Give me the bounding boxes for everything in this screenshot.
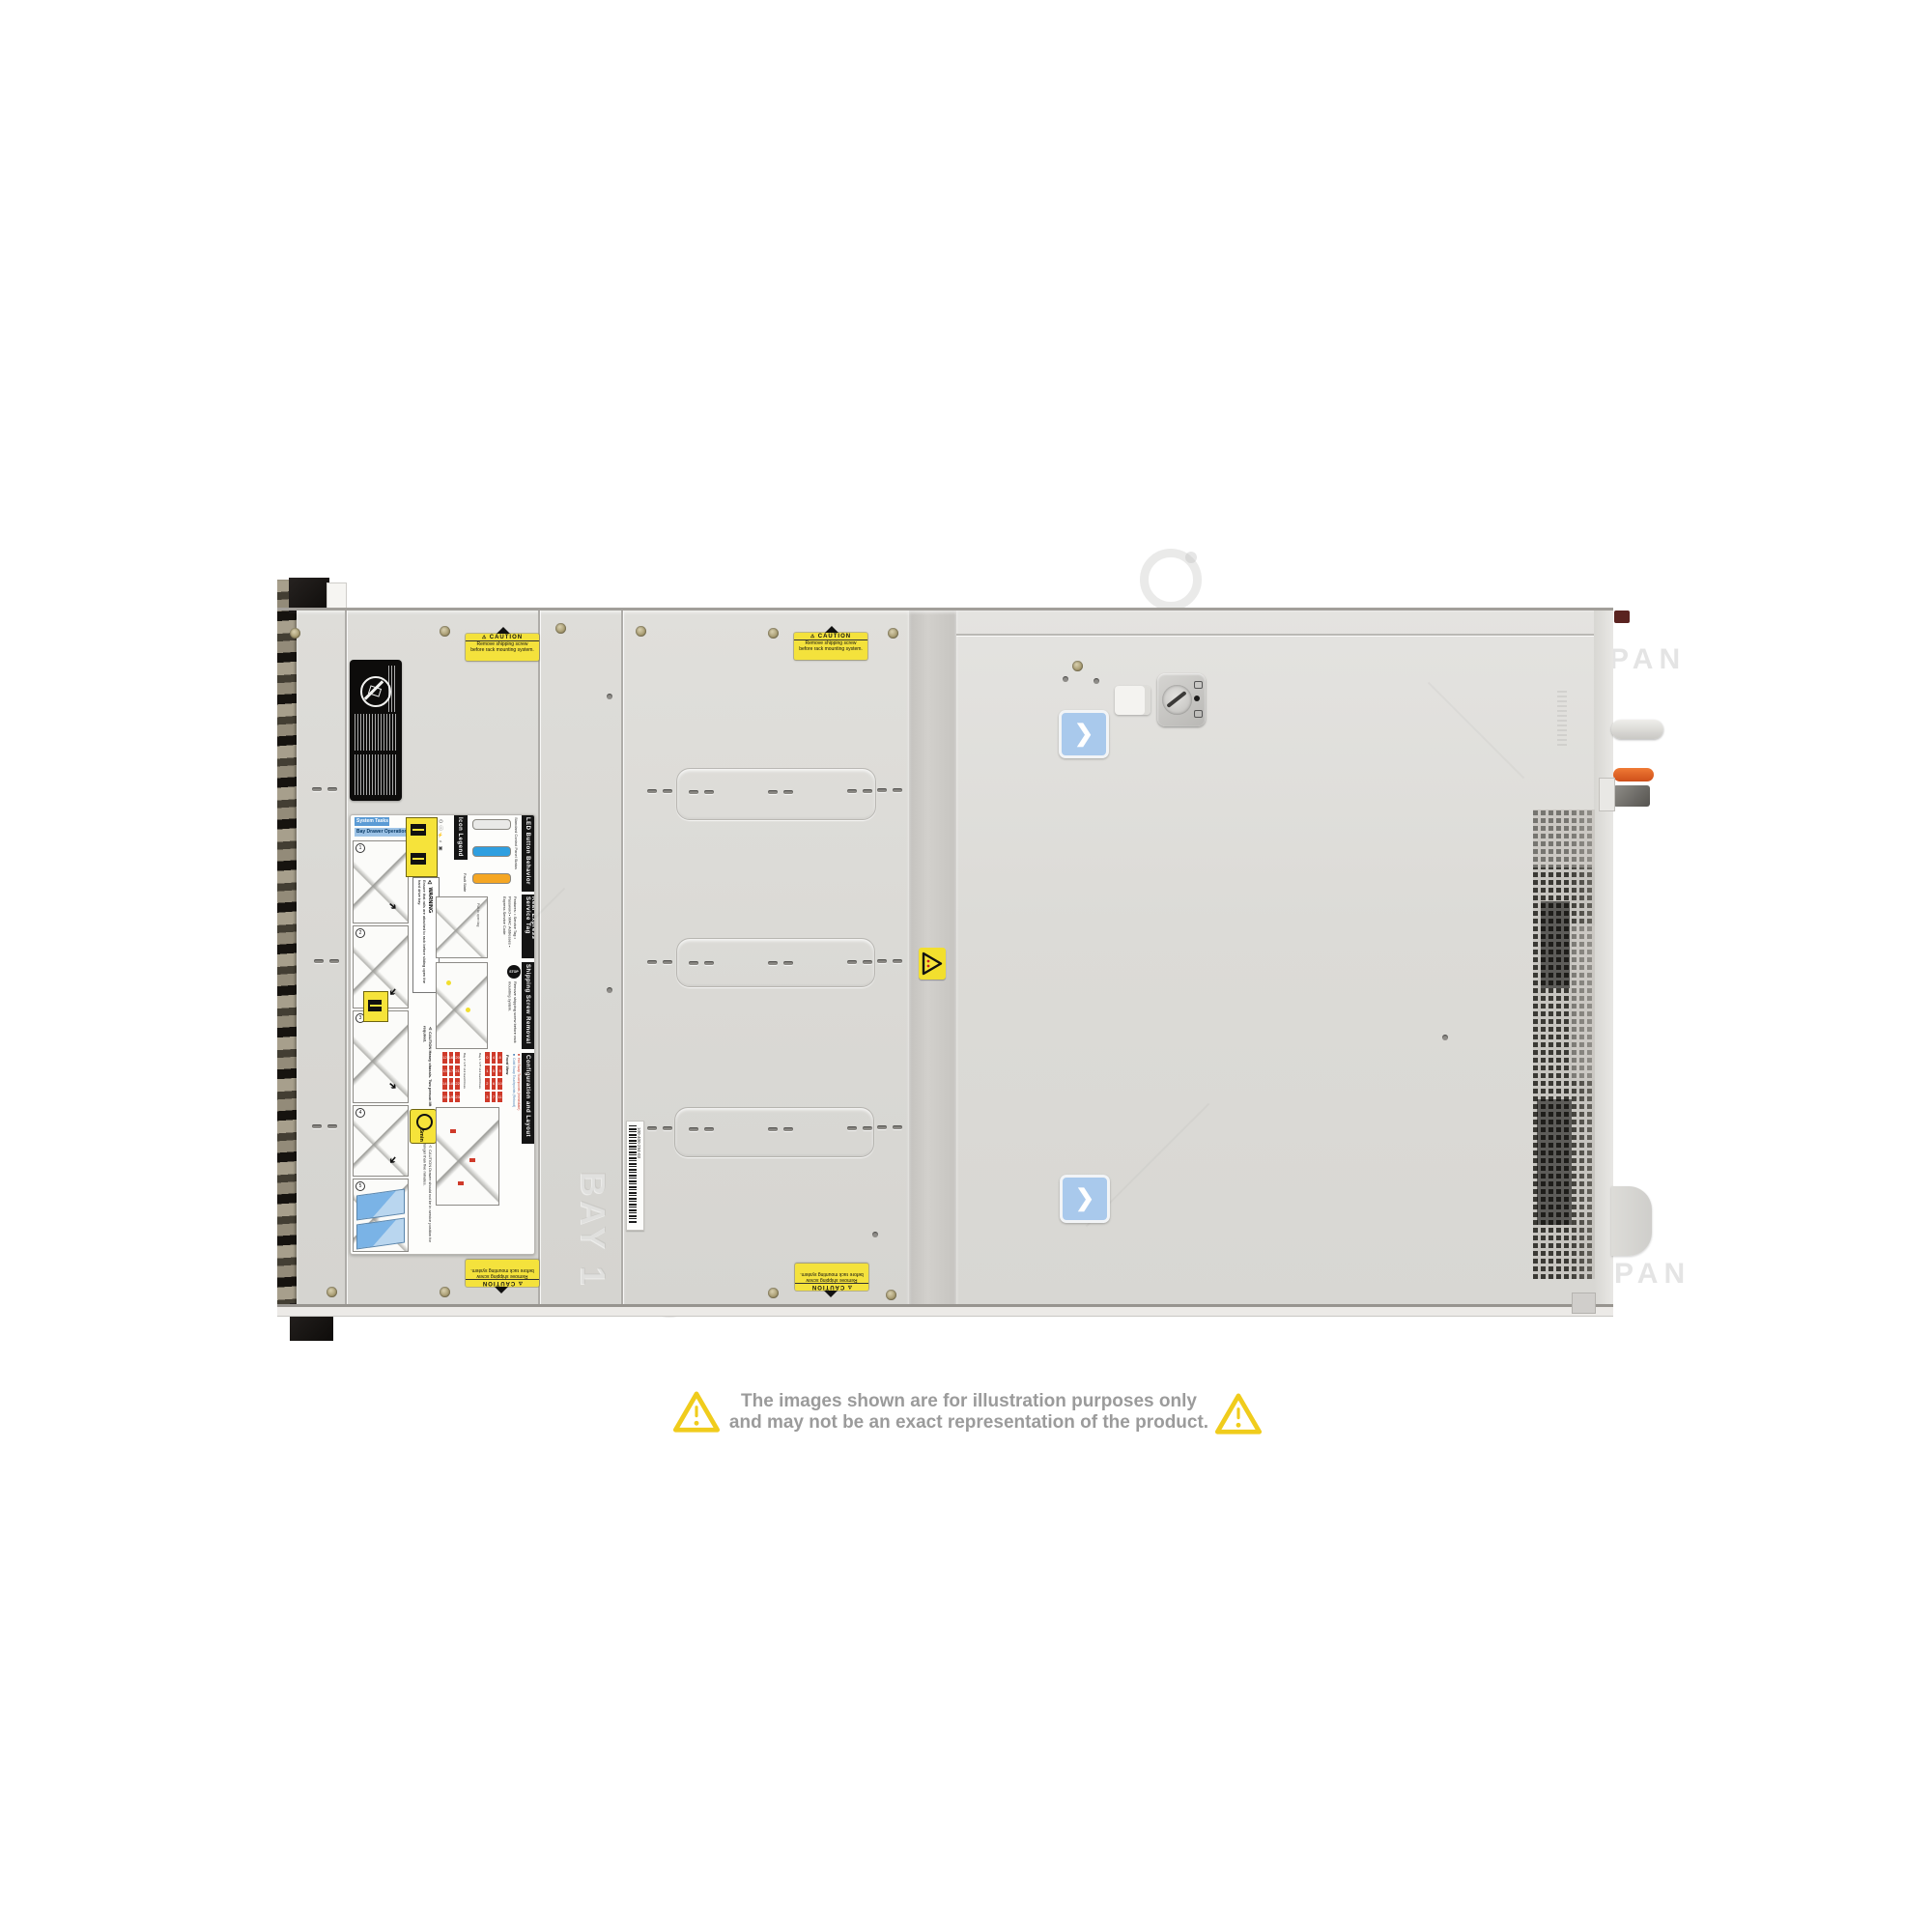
step-number: 5	[355, 1181, 365, 1191]
chassis-screw	[888, 628, 898, 639]
touchpoint	[450, 1129, 456, 1133]
rear-screw-tab	[1614, 611, 1630, 623]
drive-slot-cell: 19	[448, 1091, 455, 1104]
chassis-rivet	[607, 694, 612, 699]
stop-icon: STOP	[507, 965, 521, 979]
led-diagram: Normal StateFault State	[472, 819, 511, 893]
shipping-screw-diagram	[436, 962, 488, 1049]
five-min-badge: 5min	[410, 1109, 437, 1144]
screw-highlight	[466, 1008, 470, 1012]
chassis-screw	[327, 1287, 337, 1297]
drive-slot-cell: 16	[448, 1051, 455, 1065]
led-state-pill	[472, 819, 511, 830]
touchpoint	[469, 1158, 475, 1162]
drive-slot-cell: 5	[491, 1065, 497, 1078]
product-photo-canvas: COMPANCOMPANCOMPANCOMPANCOMPANCOMPANCOMP…	[0, 0, 1932, 1932]
drive-slot-cell: 6	[491, 1077, 497, 1091]
caution-title: CAUTION	[466, 634, 539, 641]
vent-shadow	[1537, 1099, 1572, 1225]
caution-sticker: CAUTIONRemove shipping screwbefore rack …	[466, 634, 539, 661]
cover-panel-right	[956, 609, 1613, 1310]
shipping-text: Remove shipping screw before rack mounti…	[491, 981, 518, 1045]
chassis-screw	[440, 1287, 450, 1297]
screw-highlight	[446, 980, 451, 985]
cover-lock-plate	[1157, 673, 1206, 726]
caution-heavy-text: ⚠ CAUTION Heavy chassis. Two person lift…	[410, 1026, 433, 1107]
regulatory-fine-print	[388, 666, 397, 712]
caution-line2: before rack mounting system.	[794, 646, 867, 652]
embossed-marking	[1557, 691, 1567, 749]
led-subheader: Standard Control Panel Status	[514, 817, 519, 893]
service-label: System Tasks Bay Drawer Operation 1➔2➔3➔…	[350, 814, 535, 1255]
barcode-number: 100-400-294-03	[637, 1127, 641, 1158]
bay2-drive-table: 121620131721141822151923	[441, 1051, 461, 1103]
cover-right-top-strip-seam	[956, 634, 1613, 636]
regulatory-fine-print	[355, 754, 397, 795]
led-state-label: Normal State	[463, 819, 468, 848]
drive-slot-cell: 11	[497, 1091, 503, 1104]
drive-slot-cell: 0	[484, 1051, 491, 1065]
drive-slot-cell: 15	[441, 1091, 448, 1104]
vent-slot-pair	[647, 789, 672, 794]
cover-screw	[1072, 661, 1083, 671]
led-header: LED Button Behavior	[522, 815, 534, 892]
drive-slot-cell: 17	[448, 1065, 455, 1078]
caution-drawer-text: ⚠ CAUTION Drawer should not be in servic…	[412, 1144, 433, 1242]
cover-hole	[1094, 678, 1099, 684]
rear-bump-handle	[1611, 1186, 1652, 1256]
panel-seam-3	[621, 609, 623, 1306]
lock-keyhole	[1194, 696, 1200, 701]
no-hammer-icon	[360, 676, 391, 707]
server-top-view: System Tasks Bay Drawer Operation 1➔2➔3➔…	[277, 576, 1664, 1320]
bottom-side-notch	[1572, 1293, 1596, 1314]
front-view-label: Front View	[505, 1055, 510, 1097]
drive-slot-cell: 23	[454, 1091, 461, 1104]
front-bezel-drives	[277, 580, 297, 1314]
service-tag-diagram: Pull to open tag	[436, 896, 488, 958]
drive-slot-cell: 12	[441, 1051, 448, 1065]
service-tag-header: Rear Express Service Tag	[522, 895, 534, 958]
blue-arrow-sticker: ❯	[1059, 710, 1109, 758]
chassis-rivet	[607, 987, 612, 993]
drive-slot-cell: 2	[484, 1077, 491, 1091]
pinch-hazard-pictogram	[363, 991, 388, 1022]
vent-highlight	[1572, 925, 1595, 1080]
step-number: 2	[355, 928, 365, 938]
chassis-bottom-side	[277, 1307, 1613, 1317]
drive-slot-cell: 10	[497, 1077, 503, 1091]
disclaimer-text: The images shown are for illustration pu…	[718, 1391, 1220, 1434]
blue-arrow-sticker: ❯	[1060, 1175, 1110, 1223]
vent-slot-pair	[647, 1126, 672, 1131]
disclaimer-line2: and may not be an exact representation o…	[718, 1412, 1220, 1434]
step-number: 4	[355, 1108, 365, 1118]
caution-sticker: CAUTIONRemove shipping screwbefore rack …	[466, 1260, 539, 1287]
panel-seam-2	[538, 609, 540, 1306]
shipping-header: Shipping Screw Removal	[522, 962, 534, 1049]
icon-legend-glyphs: ⏻ ⓘ ⚡ ⌁ ▣	[438, 819, 442, 889]
panel-seam-1	[345, 609, 347, 1306]
caution-line2: before rack mounting system.	[466, 1267, 539, 1273]
vent-slot-pair	[647, 960, 672, 965]
vent-slot-pair	[877, 1125, 902, 1130]
drive-slot-cell: 22	[454, 1077, 461, 1091]
rear-vent-grid	[1533, 810, 1595, 1279]
bay1-name: Bay 1: 3.5" x12 Hard Drives	[477, 1053, 482, 1103]
chassis-screw	[886, 1290, 896, 1300]
caution-sticker: CAUTIONRemove shipping screwbefore rack …	[794, 633, 867, 660]
cover-release-latch	[1115, 686, 1151, 715]
vent-highlight	[1533, 810, 1595, 867]
drive-slot-cell: 3	[484, 1091, 491, 1104]
embossed-bay-text: BAY 1	[573, 1171, 613, 1289]
chassis-screw	[636, 626, 646, 637]
service-tag-hint: Pull to open tag	[475, 903, 480, 952]
disclaimer-line1: The images shown are for illustration pu…	[718, 1391, 1220, 1412]
drive-slot-cell: 14	[441, 1077, 448, 1091]
chevron-right-icon: ❯	[1075, 1187, 1094, 1210]
arrow-icon: ➔	[385, 900, 398, 914]
recessed-panel-outline	[674, 1107, 874, 1157]
config-legend-cold: ■ Cold Swap Touchpoints (Reboot)	[511, 1053, 516, 1142]
caution-line2: before rack mounting system.	[795, 1271, 868, 1277]
drive-slot-cell: 7	[491, 1091, 497, 1104]
rear-handle	[1611, 720, 1663, 739]
caution-line2: before rack mounting system.	[466, 647, 539, 653]
step-number: 1	[355, 843, 365, 853]
regulatory-label	[350, 660, 402, 801]
lock-dial-icon	[1162, 685, 1192, 715]
pinch-hazard-pictogram	[406, 817, 438, 877]
warning-triangle-icon	[1213, 1391, 1264, 1437]
hazard-triangle-sticker	[919, 948, 946, 980]
config-legend-hot: ■ Hot Swap Touchpoints (Immediate)	[516, 1053, 521, 1142]
barcode-sticker: 100-400-294-03	[626, 1121, 644, 1231]
chassis-screw	[290, 628, 300, 639]
clock-icon	[416, 1114, 433, 1130]
arrow-icon: ➔	[385, 1153, 399, 1166]
led-state-pill	[472, 846, 511, 857]
chassis-rivet	[1442, 1035, 1448, 1040]
drive-slot-cell: 4	[491, 1051, 497, 1065]
config-header: Configuration and Layout	[522, 1053, 534, 1144]
chassis-rivet	[872, 1232, 878, 1237]
rear-orange-tab	[1613, 768, 1654, 781]
regulatory-fine-print	[355, 714, 397, 751]
caution-title: CAUTION	[795, 1283, 868, 1291]
hazard-triangle-icon	[921, 951, 944, 977]
rear-latch-piece	[1613, 785, 1650, 807]
vent-slot-pair	[312, 787, 337, 792]
rear-edge-step	[1599, 778, 1615, 811]
warning-title: ⚠ WARNING	[427, 880, 433, 913]
bay1-drive-table: 04815926103711	[484, 1051, 503, 1103]
warning-text: Ensure that rails are attached to rack b…	[415, 880, 427, 992]
chassis-screw	[440, 626, 450, 637]
bay2-name: Bay 2: 3.5" x12 Hard Drives	[462, 1053, 467, 1103]
chassis-top-edge	[277, 608, 1613, 611]
drive-slot-cell: 18	[448, 1077, 455, 1091]
drive-slot-cell: 13	[441, 1065, 448, 1078]
recessed-panel-outline	[676, 768, 876, 820]
drive-slot-cell: 1	[484, 1065, 491, 1078]
barcode-icon	[629, 1125, 637, 1224]
instruction-step-diagram: 3➔	[353, 1010, 409, 1103]
led-state-pill	[472, 873, 511, 884]
drive-slot-cell: 9	[497, 1065, 503, 1078]
locked-icon	[1194, 681, 1203, 689]
caution-title: CAUTION	[794, 633, 867, 640]
vent-slot-pair	[314, 959, 339, 964]
chassis-screw	[555, 623, 566, 634]
warning-triangle-icon	[671, 1389, 722, 1435]
caution-title: CAUTION	[466, 1279, 539, 1287]
chassis-screw	[768, 628, 779, 639]
drawer-diagram	[436, 1107, 499, 1206]
cover-right-rear-strip	[1594, 611, 1613, 1310]
vent-shadow	[1541, 901, 1570, 988]
caution-sticker: CAUTIONRemove shipping screwbefore rack …	[795, 1264, 868, 1291]
recessed-panel-outline	[676, 938, 875, 987]
caution-line1: Remove shipping screw	[795, 1277, 868, 1283]
drive-slot-cell: 8	[497, 1051, 503, 1065]
cover-hole	[1063, 676, 1068, 682]
instruction-step-diagram: 4➔	[353, 1105, 409, 1177]
drive-slot-cell: 20	[454, 1051, 461, 1065]
arrow-icon: ➔	[385, 1080, 398, 1094]
service-label-title: System Tasks	[355, 817, 389, 826]
vent-slot-pair	[877, 959, 902, 964]
vent-slot-pair	[877, 788, 902, 793]
vent-slot-pair	[312, 1124, 337, 1129]
chevron-right-icon: ❯	[1074, 723, 1094, 746]
service-label-subtitle: Bay Drawer Operation	[355, 828, 409, 837]
chassis-screw	[768, 1288, 779, 1298]
touchpoint	[458, 1181, 464, 1185]
unlocked-icon	[1194, 710, 1203, 718]
caution-line1: Remove shipping screw	[466, 1273, 539, 1279]
five-min-label: 5min	[418, 1129, 424, 1142]
instruction-step-diagram: 1➔	[353, 840, 409, 923]
drive-slot-cell: 21	[454, 1065, 461, 1078]
service-tag-features: Features: • Service Tag • Password • MAC…	[489, 896, 518, 956]
